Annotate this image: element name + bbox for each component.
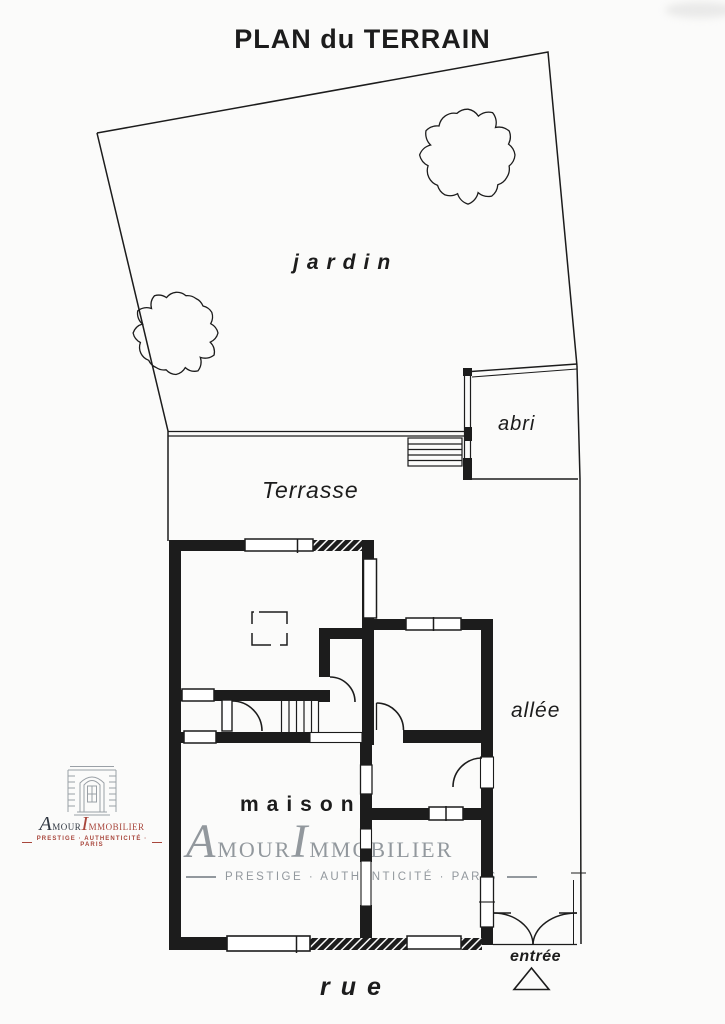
door-arc — [330, 677, 355, 702]
alley-label: allée — [511, 699, 560, 723]
house-walls — [169, 540, 493, 950]
interior-stairs — [282, 701, 319, 732]
garden-label: jardin — [293, 251, 398, 275]
windows — [182, 539, 495, 953]
terrace-stairs — [408, 438, 462, 466]
entrance-label: entrée — [510, 948, 561, 966]
door-arc — [533, 913, 577, 945]
chimney — [252, 612, 287, 645]
shed-label: abri — [498, 413, 535, 436]
entrance-doors — [493, 913, 577, 945]
door-arc — [453, 758, 482, 787]
door-arc — [493, 913, 533, 945]
house-label: maison — [240, 793, 362, 817]
page-title: PLAN du TERRAIN — [0, 24, 725, 55]
garden-trees — [133, 109, 515, 374]
terrace-edge — [168, 432, 464, 437]
tree-icon — [420, 109, 515, 204]
tree-icon — [133, 292, 218, 374]
terrace-label: Terrasse — [262, 477, 359, 504]
entrance-triangle-icon — [514, 968, 549, 990]
door-leaf — [222, 700, 232, 731]
street-label: rue — [320, 973, 392, 1002]
door-arc — [232, 701, 262, 731]
door-arc — [377, 703, 404, 730]
site-plan-page: AmourImmobilier PRESTIGE · AUTHENTICITÉ … — [0, 0, 725, 1024]
